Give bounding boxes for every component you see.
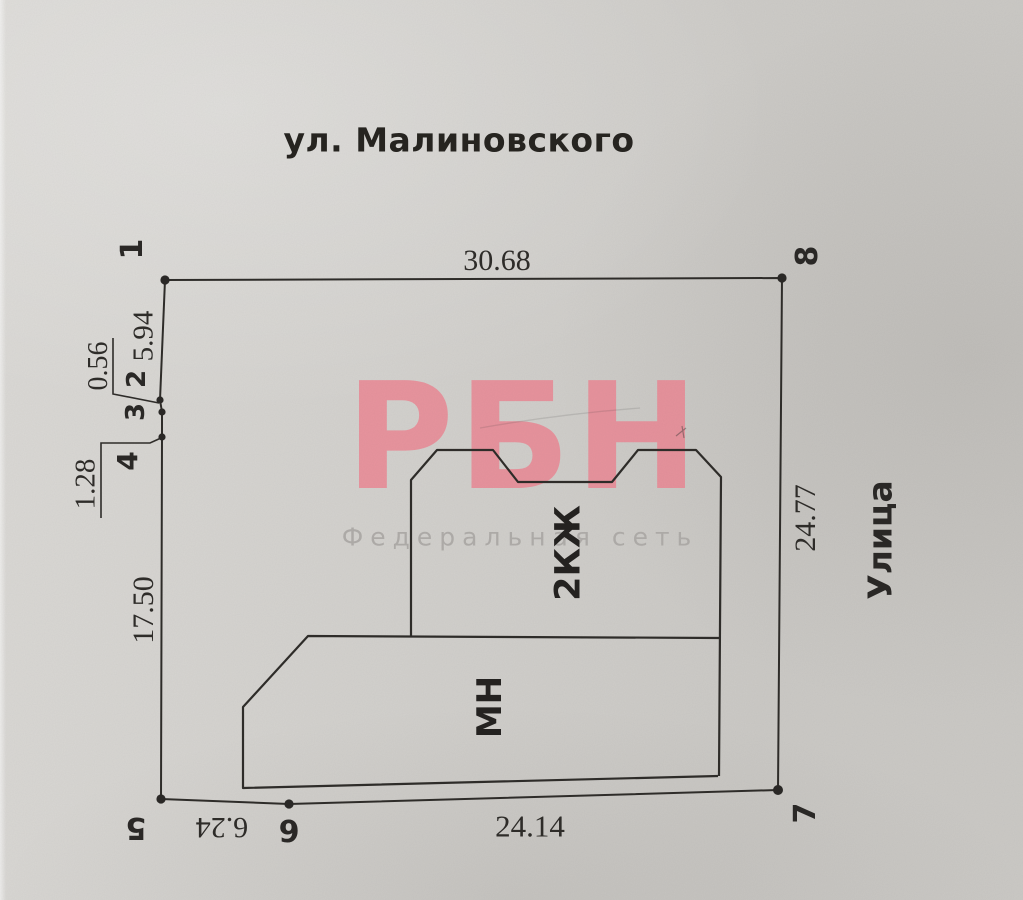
dimension-left-1-2: 5.94 (130, 311, 159, 362)
point-label-3: 3 (123, 403, 149, 421)
scanned-site-plan: РБН Федеральная сеть (0, 0, 1023, 900)
street-side-label: Улица (864, 480, 897, 599)
dimension-right: 24.77 (791, 484, 821, 552)
point-label-5: 5 (126, 812, 147, 842)
point-label-7: 7 (791, 803, 821, 824)
point-label-1: 1 (118, 239, 148, 260)
building-label-2kzh: 2КЖ (552, 505, 587, 601)
point-dot-3 (158, 408, 165, 415)
point-dot-6 (284, 799, 293, 808)
point-label-4: 4 (114, 451, 142, 470)
dimension-left-4-5: 17.50 (129, 576, 159, 644)
dimension-top: 30.68 (463, 246, 531, 276)
point-label-2: 2 (124, 370, 150, 388)
point-dot-5 (156, 794, 165, 803)
point-dot-2 (156, 396, 163, 403)
dimension-bottom: 24.14 (495, 811, 565, 842)
point-dot-4 (158, 433, 165, 440)
building-label-mn: МН (473, 676, 507, 738)
point-label-8: 8 (793, 246, 823, 267)
dimension-left-2-3: 0.56 (85, 342, 113, 391)
street-title: ул. Малиновского (283, 124, 634, 157)
point-label-6: 6 (279, 814, 300, 844)
point-dot-8 (777, 273, 786, 282)
dimension-bottom-left: 6.24 (196, 812, 249, 842)
point-dot-1 (160, 275, 169, 284)
point-dot-7 (773, 785, 783, 795)
dimension-left-3-4: 1.28 (72, 459, 101, 510)
